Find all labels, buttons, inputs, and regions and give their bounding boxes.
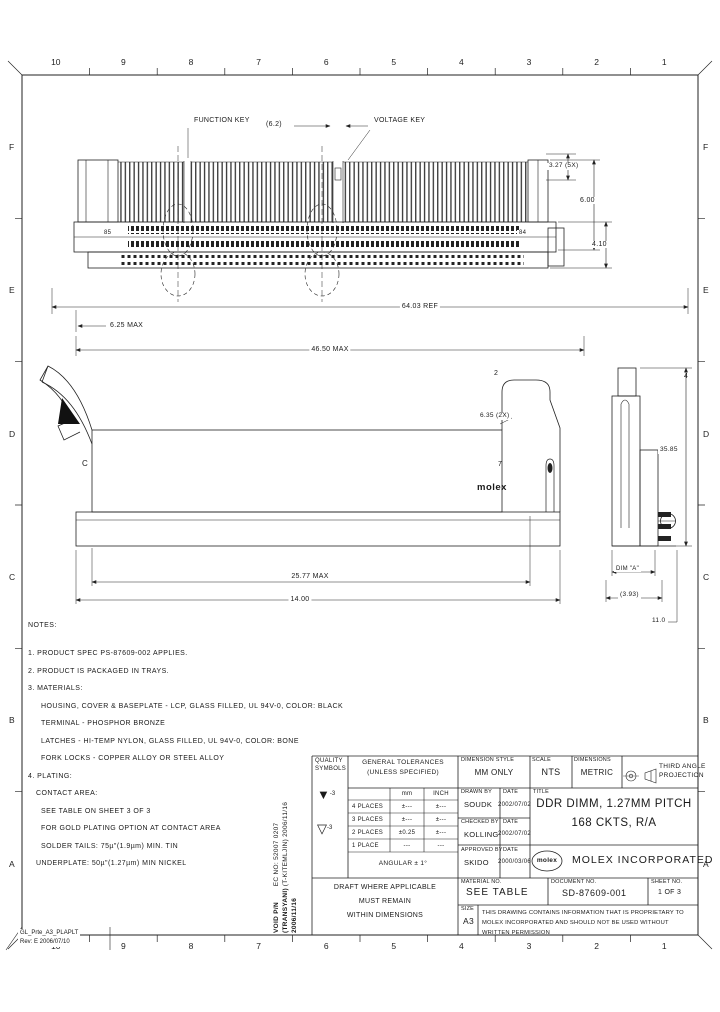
projection-label-1: THIRD ANGLE: [659, 764, 706, 771]
balloon-7: 7: [498, 461, 502, 468]
checked-date-value: 2002/07/02: [498, 831, 531, 837]
zone-col-label: 6: [324, 57, 329, 67]
draft-note-line-1: DRAFT WHERE APPLICABLE: [334, 884, 436, 891]
tol-row-mm: ±---: [402, 804, 413, 810]
zone-row-label: D: [703, 429, 709, 439]
zone-col-label: 3: [527, 941, 532, 951]
zone-row-label: C: [9, 572, 15, 582]
pin-number-left: 85: [102, 230, 113, 236]
tol-row-inch: ±---: [436, 817, 447, 823]
dim-section-tail: 11.0: [650, 618, 667, 625]
tol-row-mm: ±---: [402, 817, 413, 823]
dimensions-value: METRIC: [581, 769, 613, 777]
tol-row-label: 1 PLACE: [352, 843, 379, 849]
zone-row-label: B: [703, 715, 709, 725]
tol-row-label: 3 PLACES: [352, 817, 383, 823]
zone-row-label: A: [9, 859, 15, 869]
pin-number-right: 84: [517, 230, 528, 236]
drawing-title-line-1: DDR DIMM, 1.27MM PITCH: [536, 799, 691, 811]
zone-col-label: 10: [51, 57, 60, 67]
dim-section-height: 35.85: [658, 447, 680, 454]
quality-symbol-2-label: -3: [327, 825, 332, 831]
corner-note-line-1: GL_Prte_A3_PLAPLT: [20, 929, 78, 938]
dim-latch: 6.35 (2X): [478, 413, 511, 420]
zone-col-label: 8: [189, 941, 194, 951]
size-value: A3: [463, 917, 474, 926]
draft-note-line-3: WITHIN DIMENSIONS: [347, 912, 423, 919]
balloon-2: 2: [494, 370, 498, 377]
document-no-label: DOCUMENT NO.: [551, 880, 596, 886]
company-name: MOLEX INCORPORATED: [572, 855, 714, 866]
draft-note-line-2: MUST REMAIN: [359, 898, 411, 905]
tol-row-mm: ---: [404, 843, 411, 849]
dim-base: 14.00: [288, 596, 311, 603]
zone-row-label: F: [703, 142, 708, 152]
molex-logo-text: molex: [537, 858, 557, 865]
checked-date-label: DATE: [503, 820, 518, 826]
drawn-by-label: DRAWN BY: [461, 790, 492, 796]
quality-symbol-1-label: -3: [330, 791, 335, 797]
zone-col-label: 5: [391, 941, 396, 951]
title-label: TITLE: [533, 790, 549, 796]
zone-col-label: 9: [121, 941, 126, 951]
void-pn-label: VOID P/N: [272, 886, 281, 933]
notes-heading: NOTES:: [28, 622, 343, 629]
approved-date-value: 2000/03/06: [498, 859, 531, 865]
dim-a: DIM "A": [614, 566, 641, 572]
zone-col-label: 2: [594, 57, 599, 67]
section-view: [606, 368, 692, 622]
proprietary-statement: THIS DRAWING CONTAINS INFORMATION THAT I…: [482, 908, 694, 938]
dim-height: 6.00: [578, 197, 597, 204]
corner-revision-note: GL_Prte_A3_PLAPLT Rev: E 2006/07/10: [18, 929, 80, 947]
tolerance-title-1: GENERAL TOLERANCES: [362, 760, 444, 767]
tolerance-col-mm: mm: [402, 791, 413, 797]
zone-col-label: 5: [391, 57, 396, 67]
note-line: 2. PRODUCT IS PACKAGED IN TRAYS.: [28, 668, 343, 686]
zone-col-label: 2: [594, 941, 599, 951]
quality-label-1: QUALITY: [315, 758, 343, 764]
material-no-label: MATERIAL NO.: [461, 880, 502, 886]
dim-pitch: 3.27 (5X): [547, 163, 580, 170]
size-label: SIZE: [461, 907, 474, 913]
note-line: 1. PRODUCT SPEC PS-87609-002 APPLIES.: [28, 650, 343, 668]
note-line: FORK LOCKS - COPPER ALLOY OR STEEL ALLOY: [28, 755, 343, 773]
zone-row-label: B: [9, 715, 15, 725]
zone-col-label: 8: [189, 57, 194, 67]
dimensions-label: DIMENSIONS: [574, 758, 611, 764]
zone-row-label: C: [703, 572, 709, 582]
zone-col-label: 9: [121, 57, 126, 67]
engineering-drawing-sheet: 10 9 8 7 6 5 4 3 2 1 10 9 8 7 6 5 4 3 2 …: [0, 0, 720, 1012]
zone-col-label: 7: [256, 57, 261, 67]
zone-col-label: 7: [256, 941, 261, 951]
zone-col-label: 1: [662, 941, 667, 951]
quality-symbol-filled-row: ▼-3: [317, 788, 335, 801]
approved-date-label: DATE: [503, 848, 518, 854]
note-line: HOUSING, COVER & BASEPLATE - LCP, GLASS …: [28, 703, 343, 721]
sheet-no-label: SHEET NO.: [651, 880, 682, 886]
approved-by-value: SKIDO: [464, 859, 489, 867]
zone-row-label: E: [703, 285, 709, 295]
zone-col-label: 4: [459, 941, 464, 951]
checked-by-label: CHECKED BY: [461, 820, 499, 826]
document-no-value: SD-87609-001: [562, 889, 627, 898]
scale-value: NTS: [542, 768, 561, 777]
triangle-open-icon: ▽: [317, 821, 327, 836]
dim-style-value: MM ONLY: [475, 769, 514, 777]
tol-row-inch: ---: [438, 843, 445, 849]
dim-overall: 64.03 REF: [400, 303, 440, 310]
scale-label: SCALE: [532, 758, 551, 764]
voltage-key-label: VOLTAGE KEY: [374, 117, 425, 124]
triangle-filled-icon: ▼: [317, 787, 330, 802]
tol-row-inch: ±---: [436, 804, 447, 810]
tol-row-inch: ±---: [436, 830, 447, 836]
zone-col-label: 4: [459, 57, 464, 67]
tolerance-title-2: (UNLESS SPECIFIED): [367, 770, 439, 777]
function-key-label: FUNCTION KEY: [194, 117, 250, 124]
quality-label-2: SYMBOLS: [315, 766, 346, 772]
material-no-value: SEE TABLE: [466, 888, 529, 898]
zone-col-label: 3: [527, 57, 532, 67]
tol-row-mm: ±0.25: [399, 830, 415, 836]
dim-depth: (3.93): [618, 592, 641, 599]
section-label: C: [82, 460, 88, 468]
dim-tail: 4.10: [590, 241, 609, 248]
dim-style-label: DIMENSION STYLE: [461, 758, 514, 764]
molex-body-logo: molex: [477, 483, 507, 493]
projection-label-2: PROJECTION: [659, 773, 704, 780]
zone-col-label: 1: [662, 57, 667, 67]
tolerance-angular: ANGULAR ± 1°: [379, 861, 427, 868]
ec-sign-2: (T-KITEMLJIN) 2006/11/16: [281, 777, 290, 886]
zone-row-label: E: [9, 285, 15, 295]
zone-row-label: F: [9, 142, 14, 152]
note-line: TERMINAL - PHOSPHOR BRONZE: [28, 720, 343, 738]
corner-note-line-2: Rev: E 2006/07/10: [20, 938, 78, 947]
drawn-by-value: SOUDK: [464, 801, 492, 809]
ec-sign-1: (TRANSYANI) 2006/11/16: [281, 886, 299, 933]
sheet-no-value: 1 OF 3: [658, 889, 681, 896]
dim-body: 25.77 MAX: [289, 573, 330, 580]
zone-row-label: D: [9, 429, 15, 439]
tolerance-col-inch: INCH: [433, 791, 449, 797]
note-line: LATCHES - HI-TEMP NYLON, GLASS FILLED, U…: [28, 738, 343, 756]
dim-voltage-key: (6.2): [266, 121, 282, 128]
tol-row-label: 2 PLACES: [352, 830, 383, 836]
ec-number: EC NO: 52007 0207: [272, 777, 281, 886]
dim-span: 46.50 MAX: [309, 346, 350, 353]
drawing-title-line-2: 168 CKTS, R/A: [571, 818, 656, 830]
tol-row-label: 4 PLACES: [352, 804, 383, 810]
dim-end: 6.25 MAX: [110, 322, 143, 329]
quality-symbol-open-row: ▽-3: [317, 822, 332, 835]
drawn-date-label: DATE: [503, 790, 518, 796]
ec-revision-block: VOID P/N EC NO: 52007 0207 (TRANSYANI) 2…: [272, 777, 299, 933]
note-line: 3. MATERIALS:: [28, 685, 343, 703]
balloon-4: 4: [684, 373, 688, 380]
checked-by-value: KOLLING: [464, 831, 499, 839]
zone-col-label: 6: [324, 941, 329, 951]
approved-by-label: APPROVED BY: [461, 848, 503, 854]
drawn-date-value: 2002/07/02: [498, 802, 531, 808]
third-angle-projection-icon: [623, 769, 656, 783]
